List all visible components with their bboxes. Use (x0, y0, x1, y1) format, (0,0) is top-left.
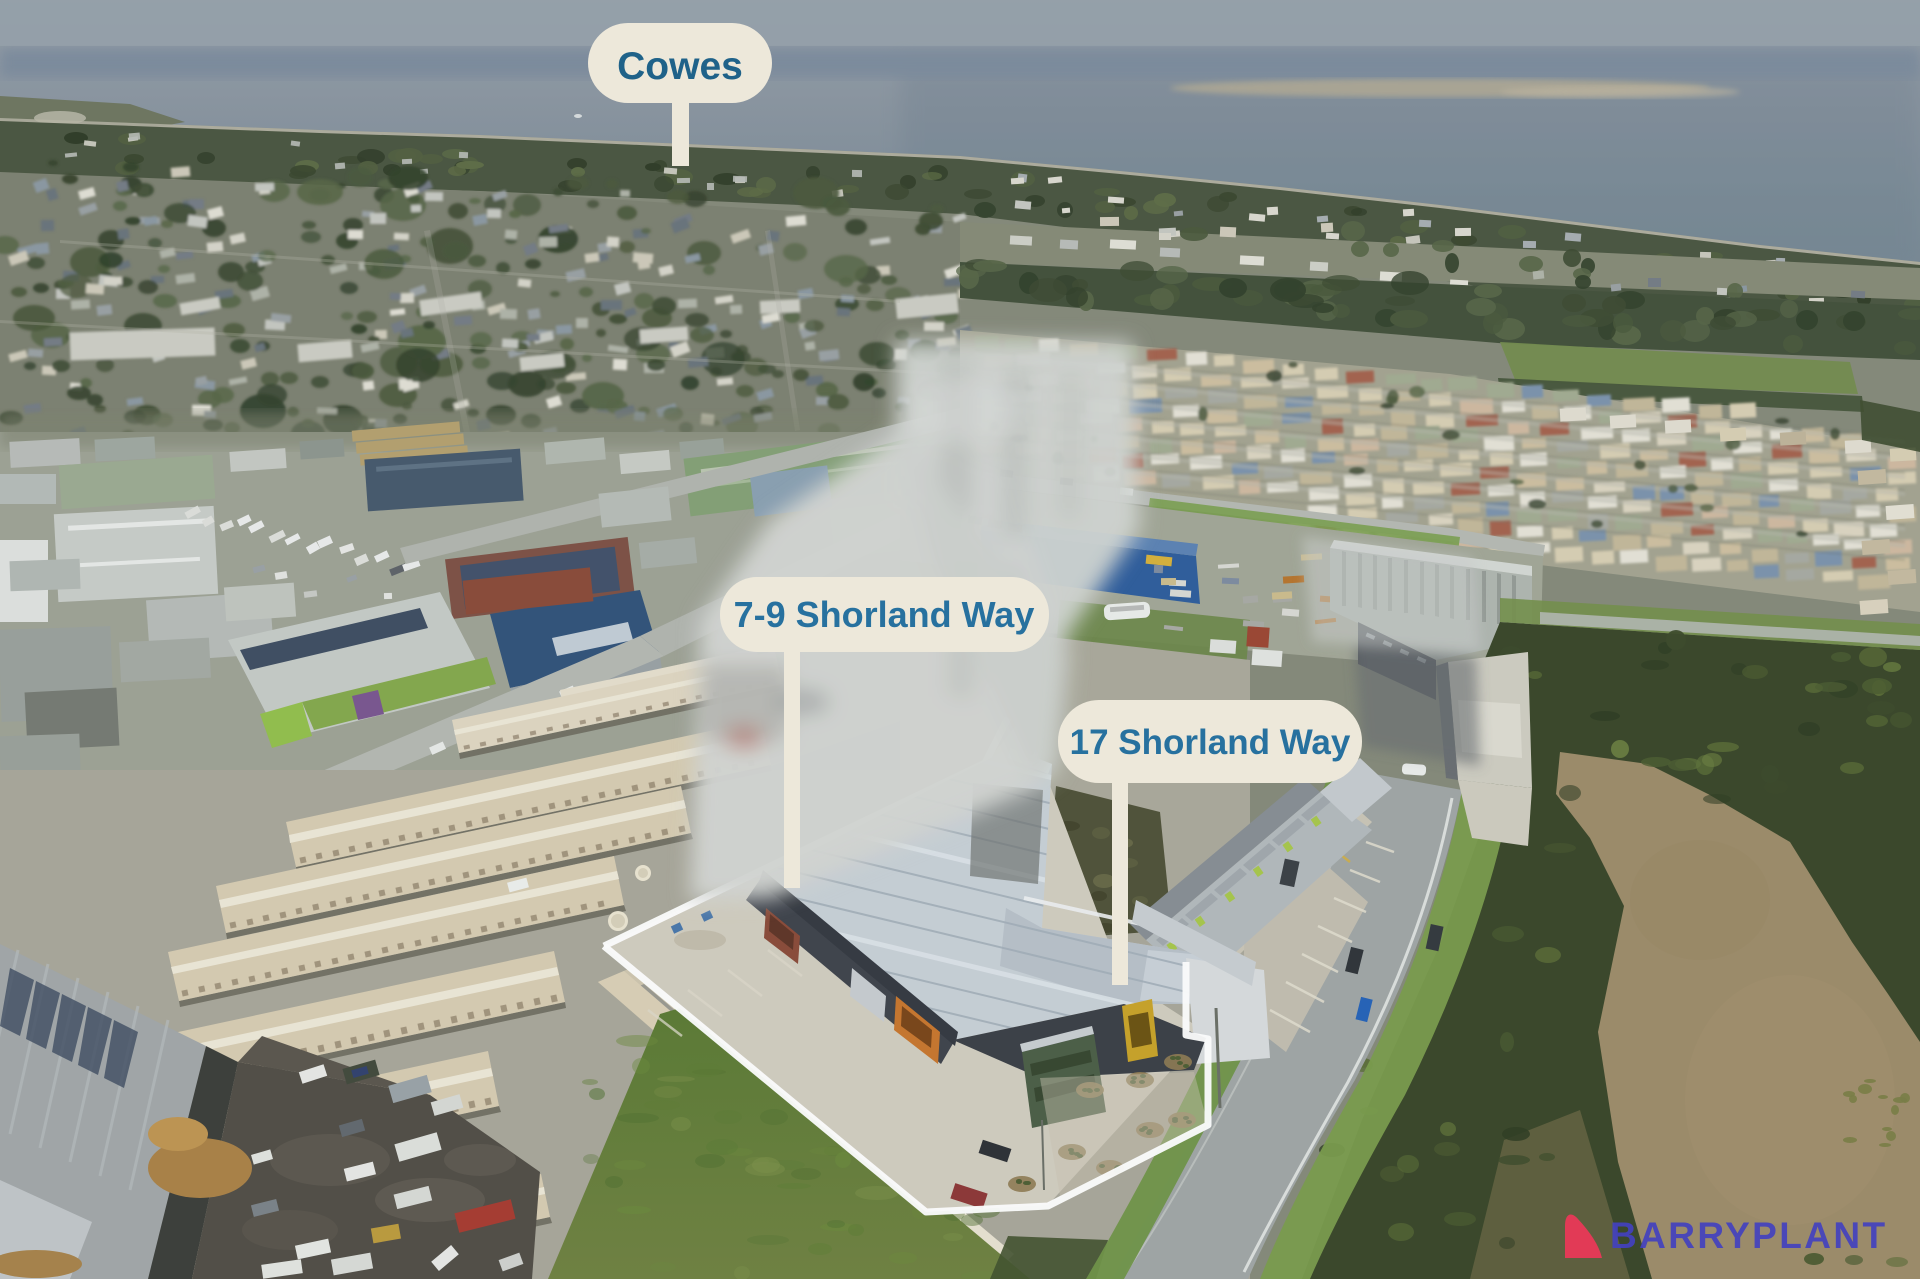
svg-text:BARRYPLANT: BARRYPLANT (1610, 1215, 1888, 1256)
